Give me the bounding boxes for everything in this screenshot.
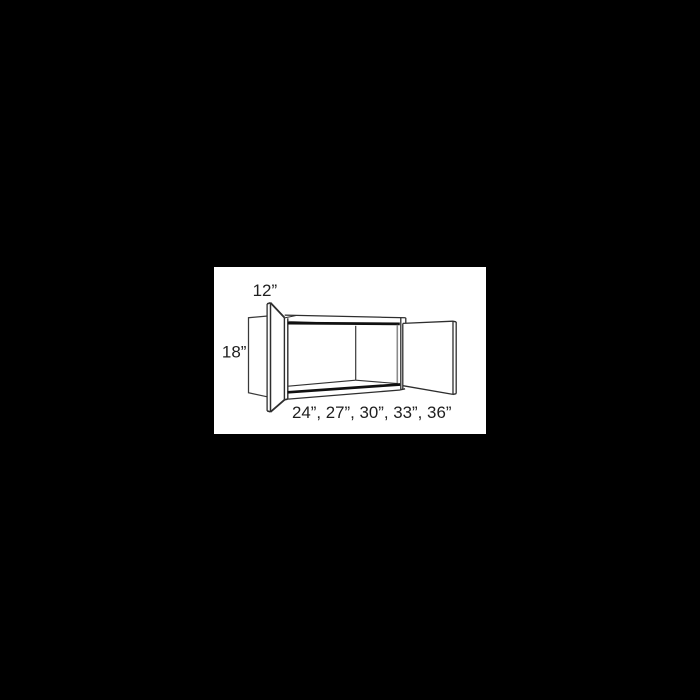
svg-text:24”, 27”, 30”, 33”, 36”: 24”, 27”, 30”, 33”, 36” [292,402,451,421]
svg-text:18”: 18” [222,342,247,361]
svg-text:12”: 12” [252,280,277,299]
